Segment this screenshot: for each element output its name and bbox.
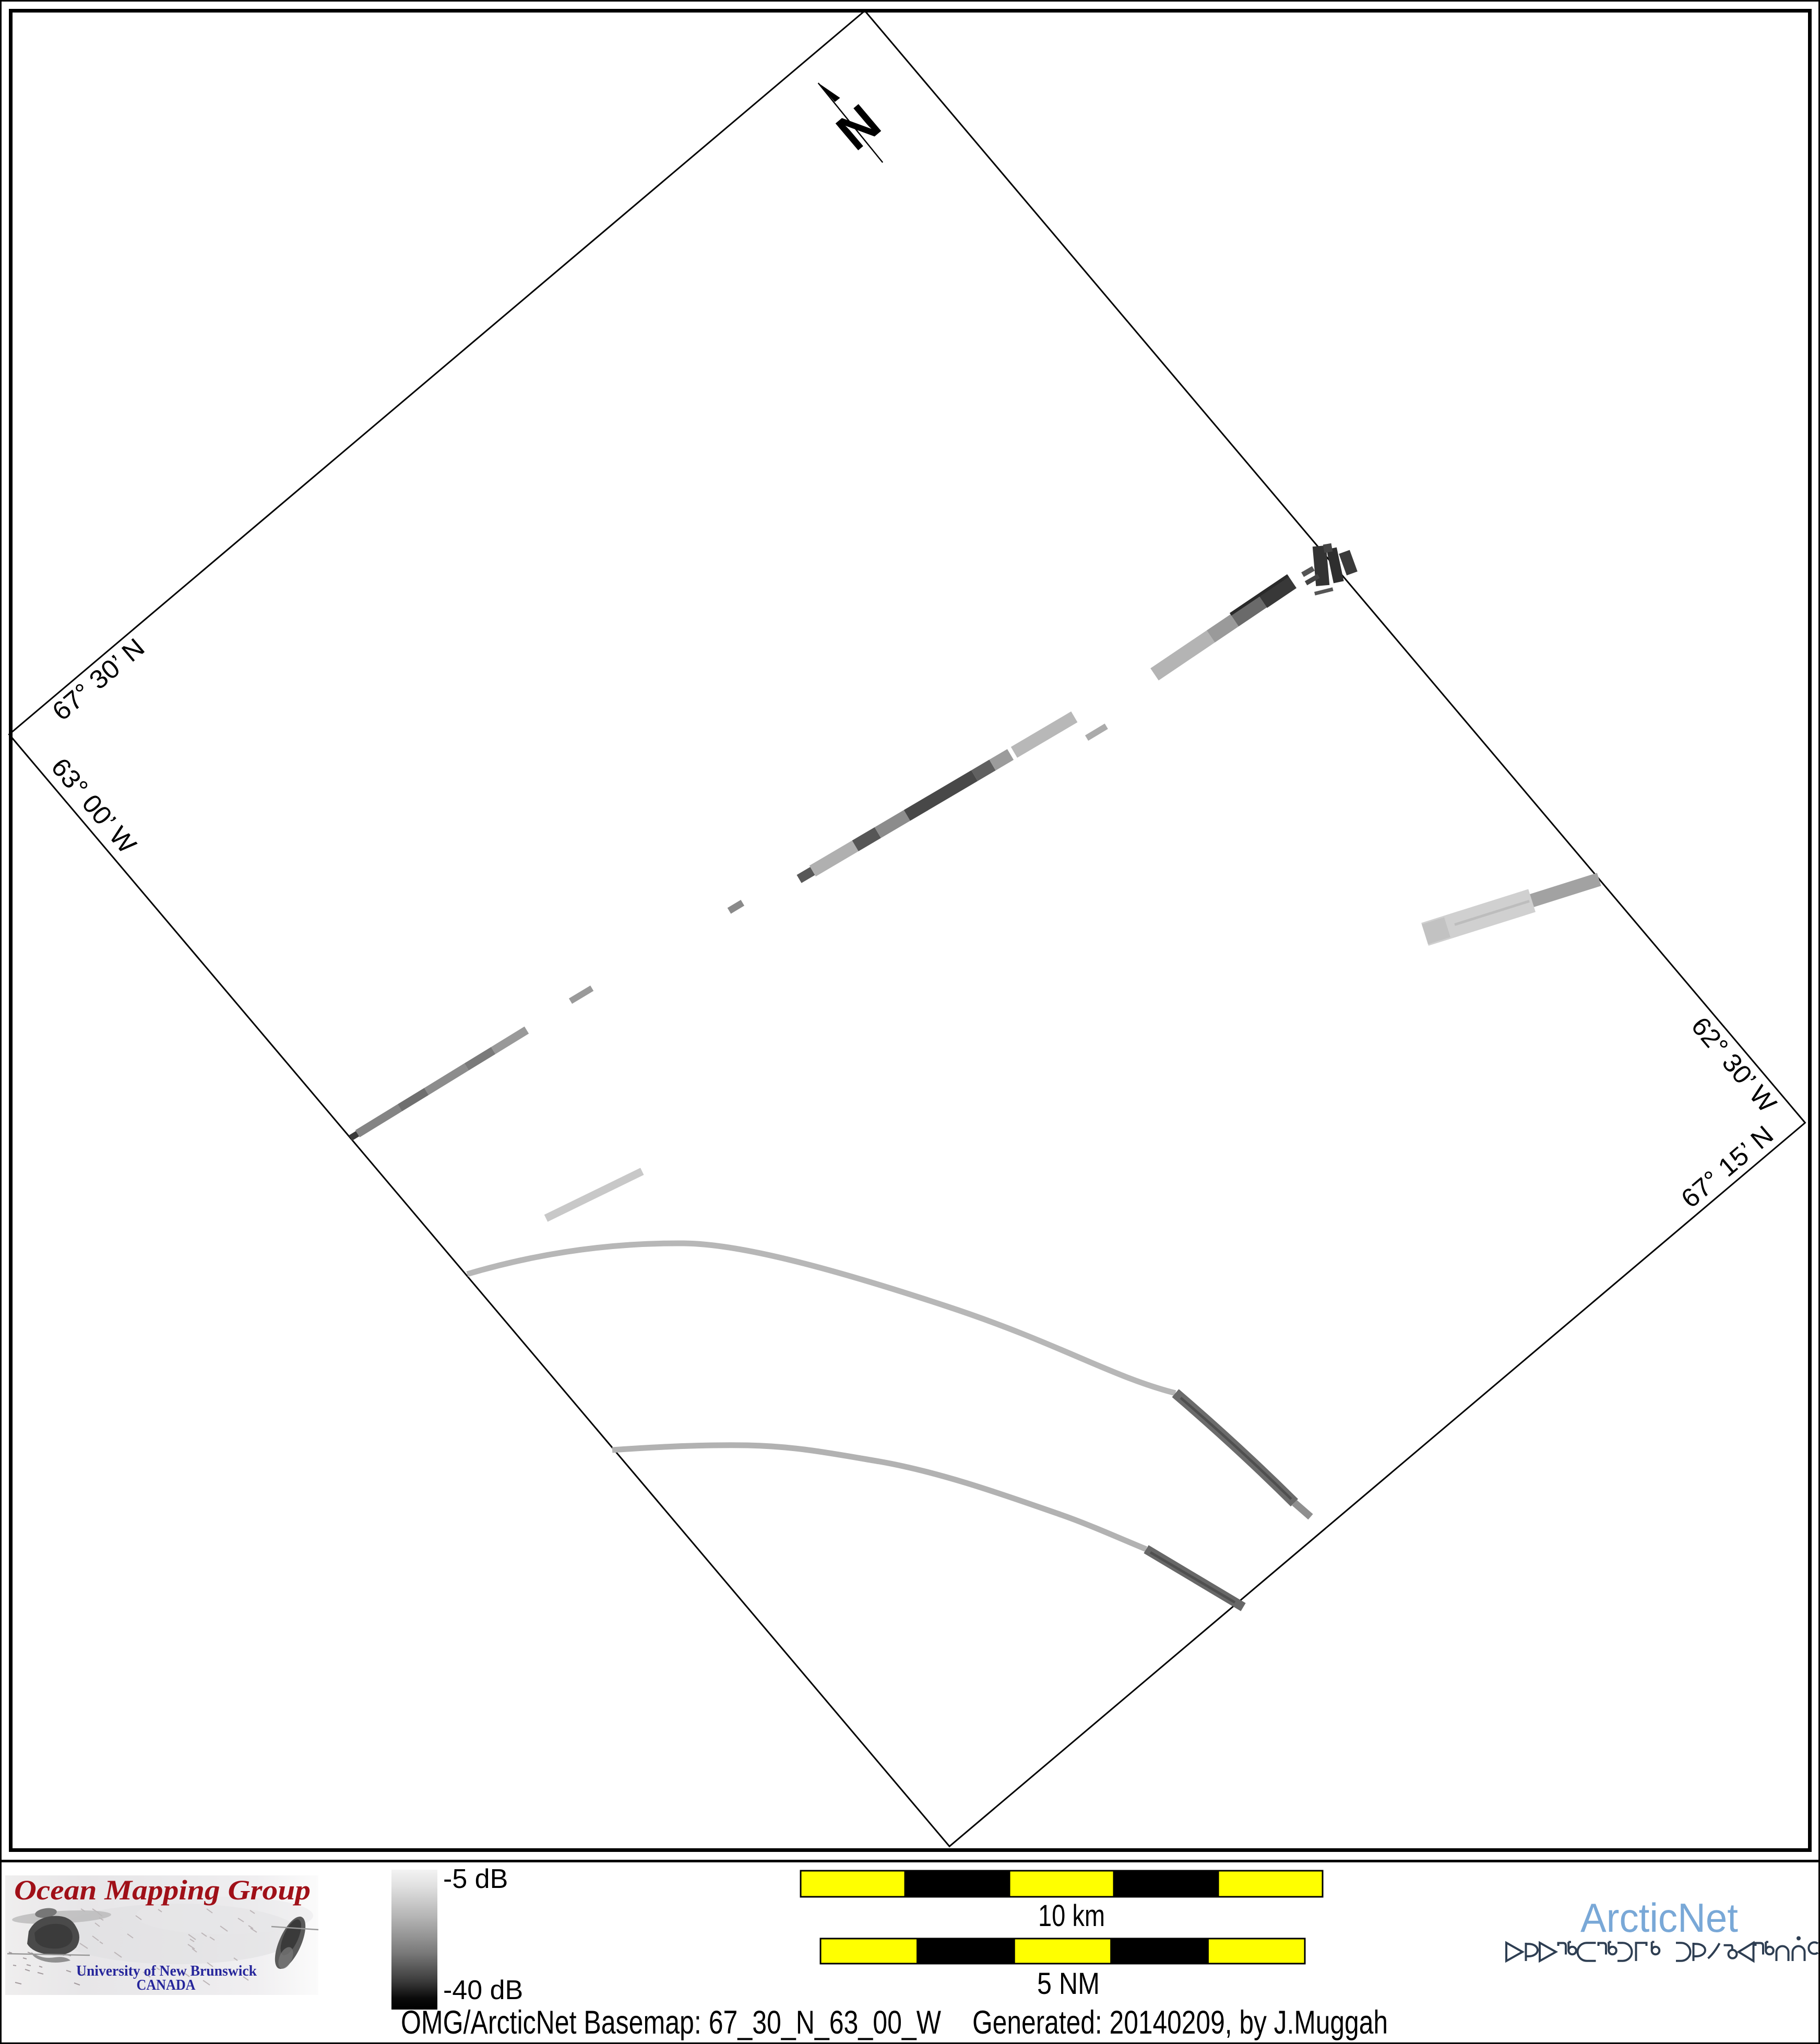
svg-text:ArcticNet: ArcticNet [1580,1895,1738,1941]
svg-text:10 km: 10 km [1038,1899,1105,1933]
svg-text:67° 30’ N: 67° 30’ N [46,633,150,727]
svg-text:5 NM: 5 NM [1037,1967,1100,2001]
svg-text:CANADA: CANADA [137,1977,196,1993]
svg-text:Ocean Mapping Group: Ocean Mapping Group [14,1874,311,1906]
svg-text:-5 dB: -5 dB [443,1864,508,1894]
svg-text:67° 15’ N: 67° 15’ N [1675,1120,1779,1214]
svg-text:OMG/ArcticNet Basemap: 67_30_N: OMG/ArcticNet Basemap: 67_30_N_63_00_W [401,2004,941,2041]
svg-text:Generated: 20140209, by J.Mugg: Generated: 20140209, by J.Muggah [972,2004,1388,2041]
svg-text:62° 30’ W: 62° 30’ W [1686,1012,1782,1119]
svg-text:-40 dB: -40 dB [443,1975,523,2005]
svg-text:63° 00’ W: 63° 00’ W [45,753,142,860]
